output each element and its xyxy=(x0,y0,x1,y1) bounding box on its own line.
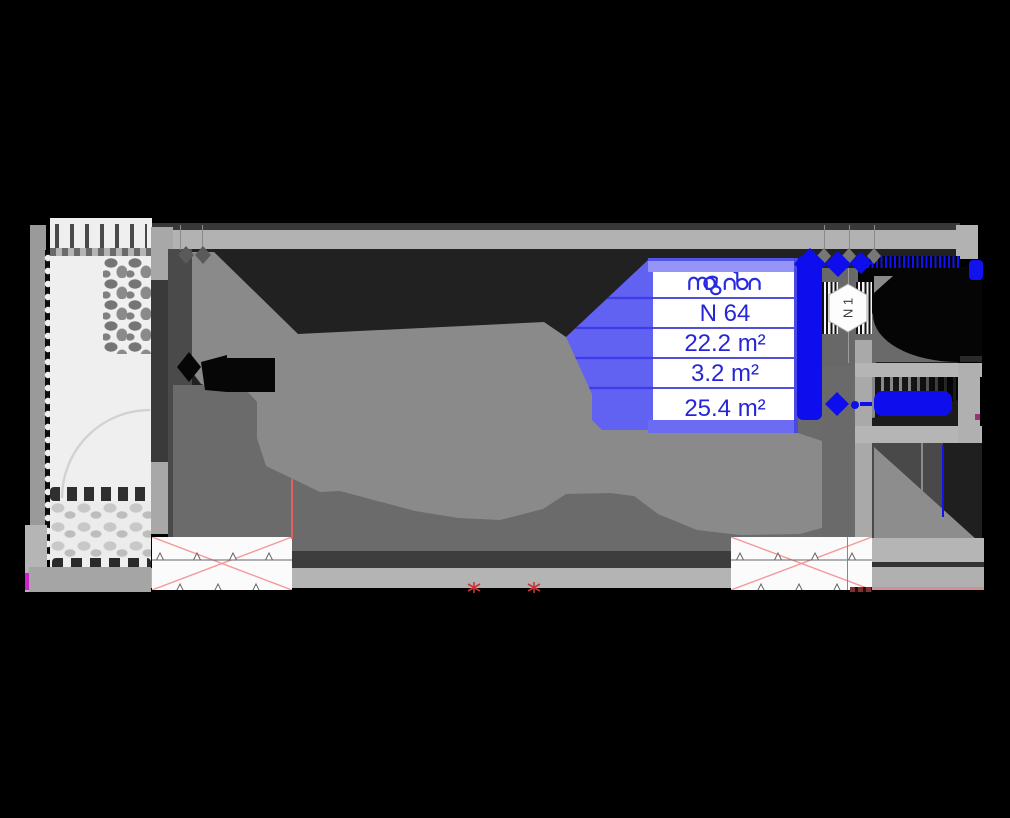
svg-text:N 1: N 1 xyxy=(841,298,856,318)
